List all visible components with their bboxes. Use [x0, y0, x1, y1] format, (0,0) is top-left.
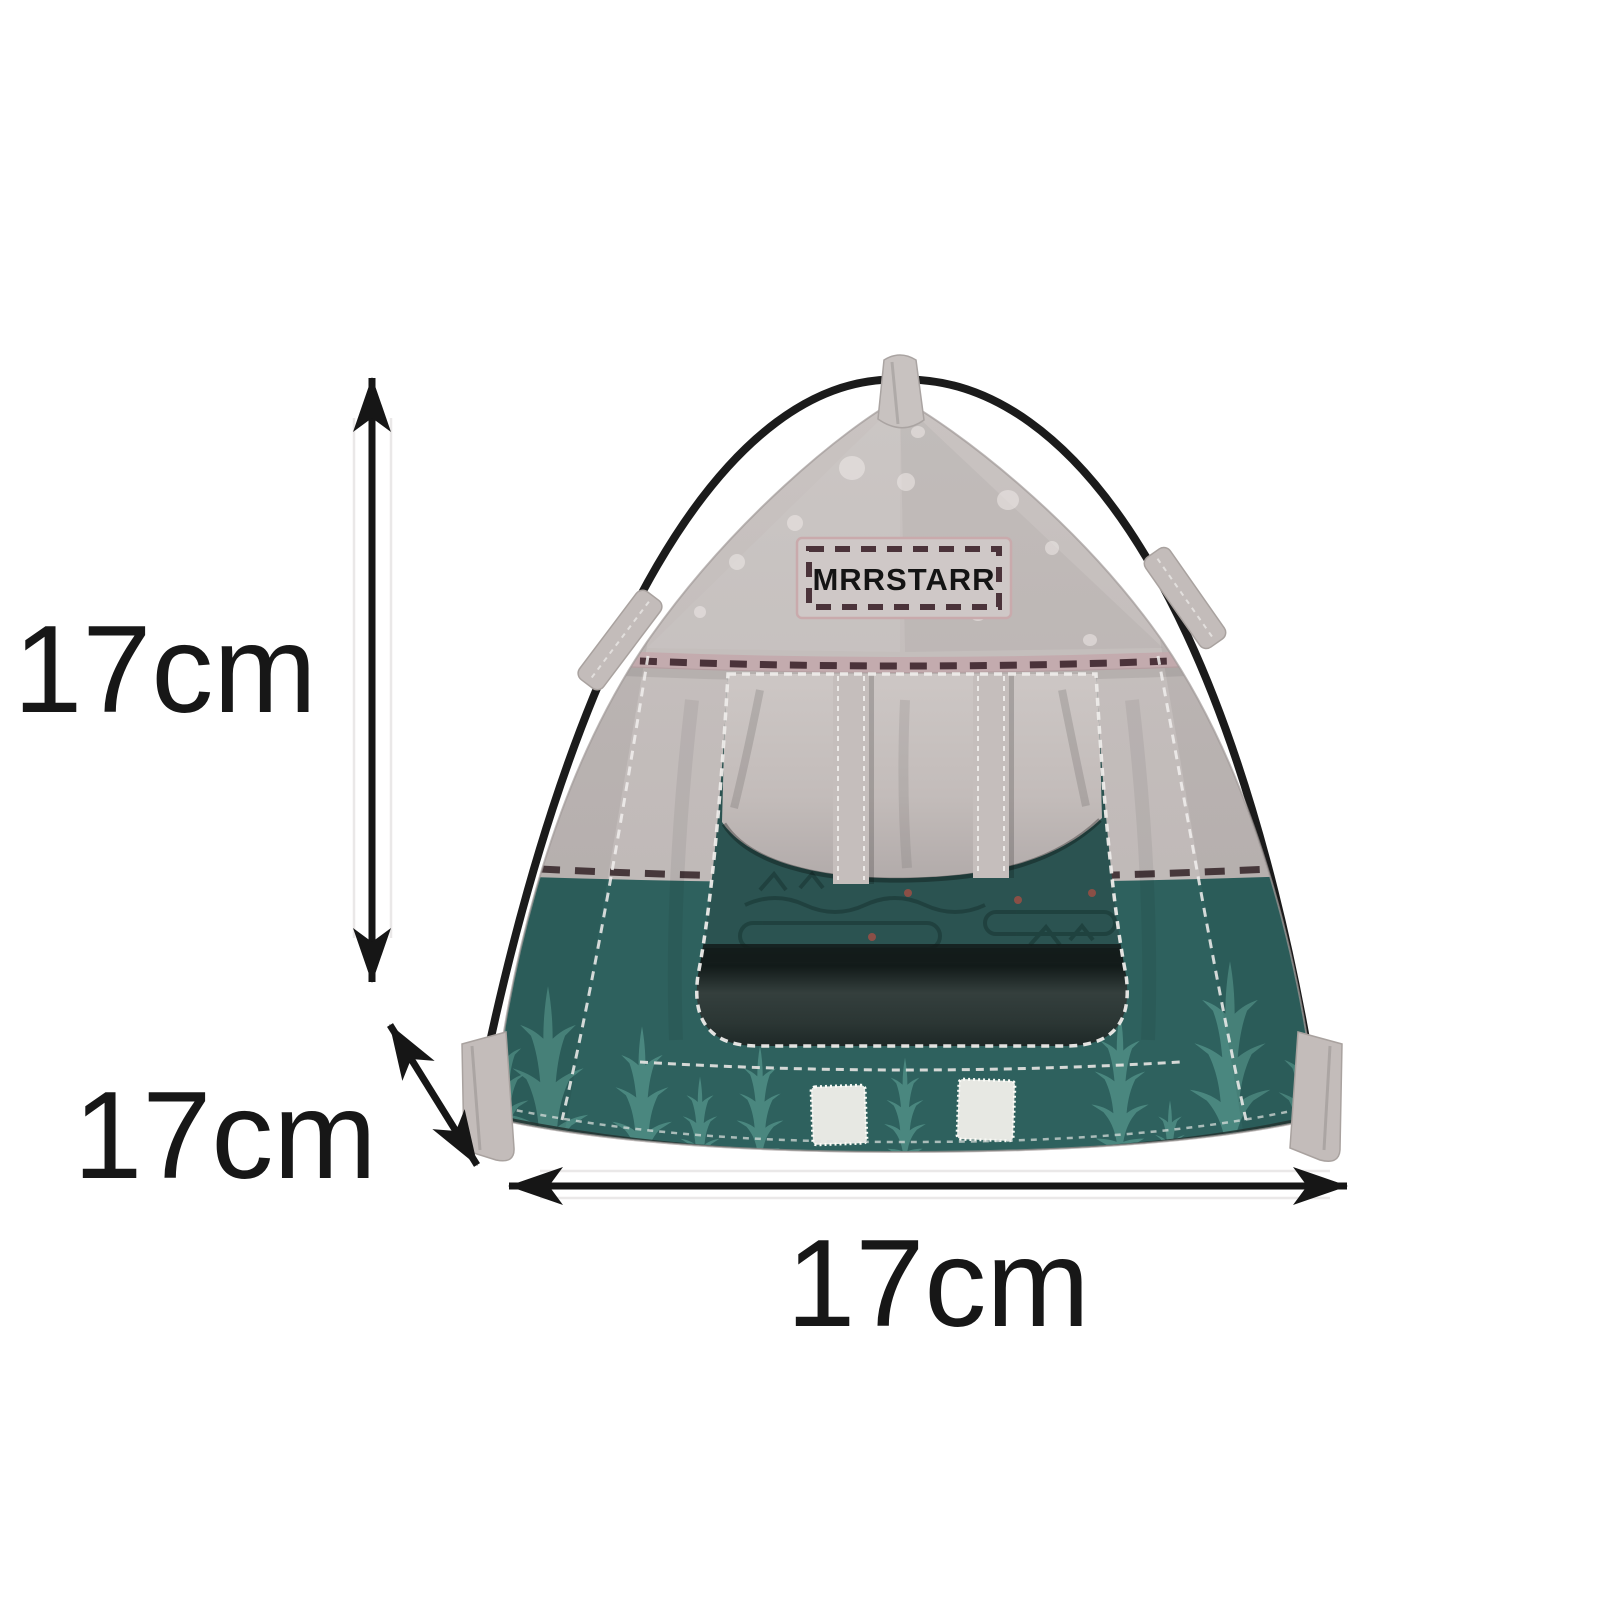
depth-dimension-label: 17cm	[73, 1067, 376, 1205]
rolled-door-curtain	[722, 672, 1102, 878]
tent-floor	[680, 948, 1140, 1048]
height-dimension-label: 17cm	[13, 601, 316, 739]
stitch-tape-band	[550, 656, 1260, 677]
brand-patch: MRRSTARR	[797, 538, 1011, 618]
velcro-tab-left	[811, 1085, 867, 1145]
corner-tab-left	[462, 1032, 514, 1161]
width-dimension-label: 17cm	[786, 1215, 1089, 1353]
brand-patch-label: MRRSTARR	[812, 562, 995, 597]
corner-tab-right	[1290, 1032, 1342, 1161]
apex-loop	[878, 355, 924, 428]
pet-tent-dimension-diagram: MRRSTARR 1	[0, 0, 1600, 1600]
velcro-tab-right	[957, 1079, 1015, 1141]
tent-body: MRRSTARR	[450, 360, 1350, 1210]
